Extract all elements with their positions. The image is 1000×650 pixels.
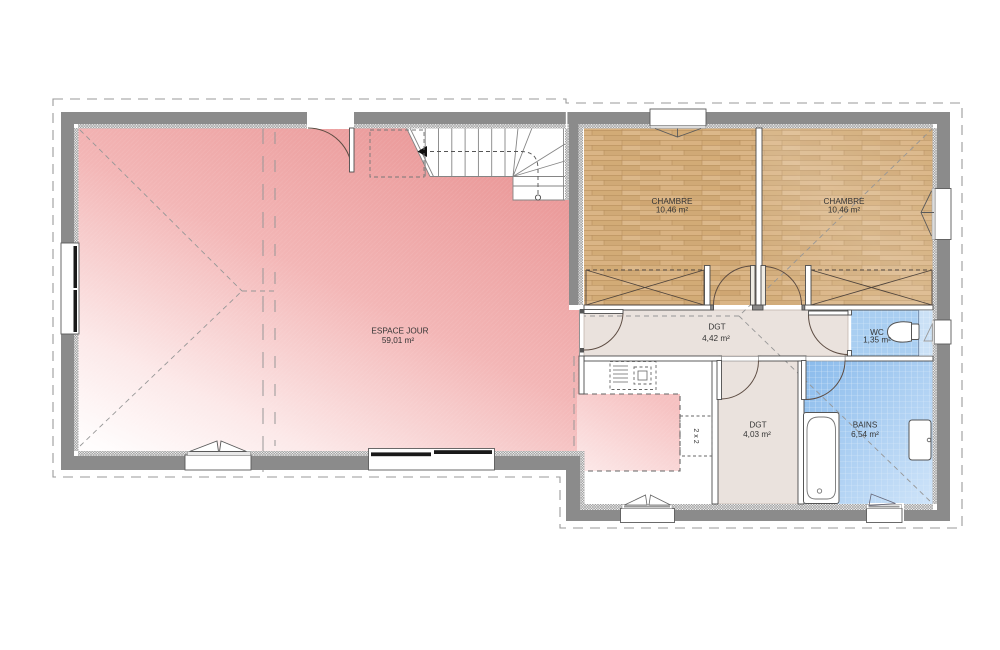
svg-text:4,42 m²: 4,42 m² [702,334,730,343]
svg-text:1,35 m²: 1,35 m² [863,336,891,345]
svg-text:59,01 m²: 59,01 m² [382,336,415,345]
svg-text:BAINS: BAINS [853,421,878,430]
svg-text:10,46 m²: 10,46 m² [656,206,689,215]
svg-text:10,46 m²: 10,46 m² [828,206,861,215]
svg-text:DGT: DGT [708,323,725,332]
svg-text:2 x 2: 2 x 2 [692,428,699,443]
svg-text:DGT: DGT [749,421,766,430]
svg-text:4,03 m²: 4,03 m² [743,430,771,439]
svg-text:ESPACE JOUR: ESPACE JOUR [371,327,428,336]
svg-text:6,54 m²: 6,54 m² [851,430,879,439]
